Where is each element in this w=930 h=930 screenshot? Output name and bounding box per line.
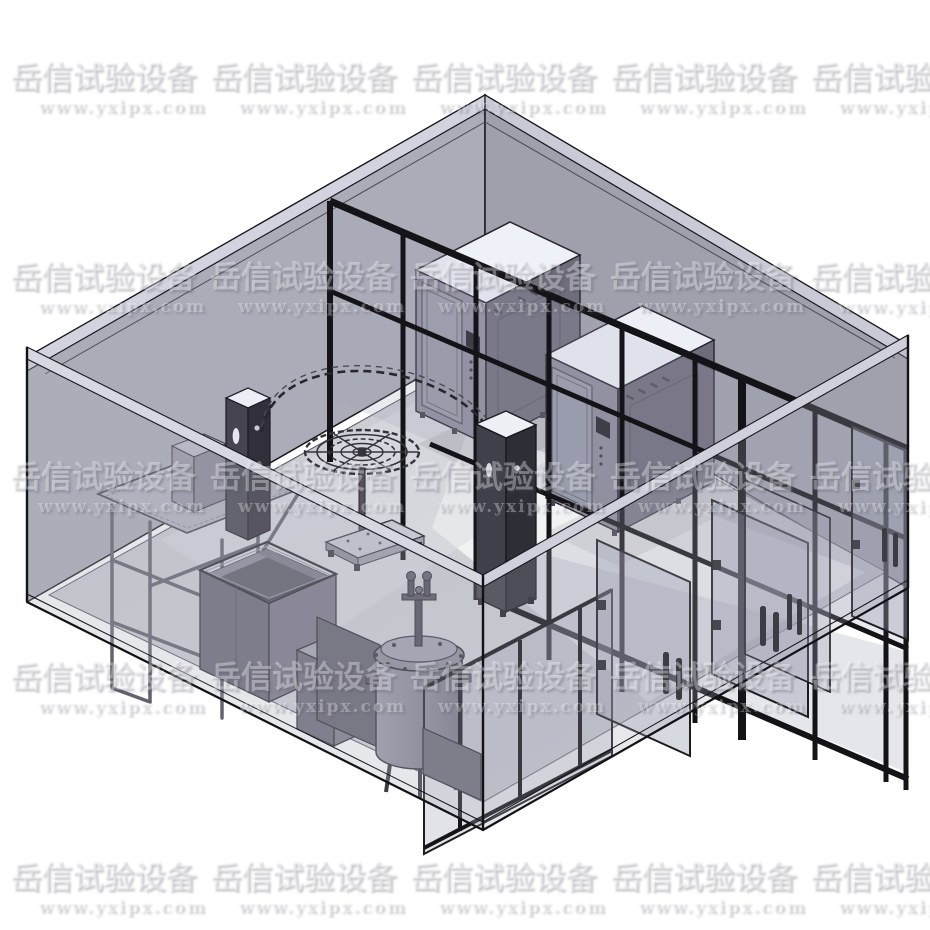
pillar-slot [233, 428, 240, 444]
render-canvas: 岳信试验设备www.yxipx.com岳信试验设备www.yxipx.com岳信… [0, 0, 930, 930]
lab-3d-render [0, 0, 930, 930]
pillar-button [254, 425, 259, 430]
pillar2-button [514, 465, 520, 471]
pillar2-slot [486, 463, 492, 477]
